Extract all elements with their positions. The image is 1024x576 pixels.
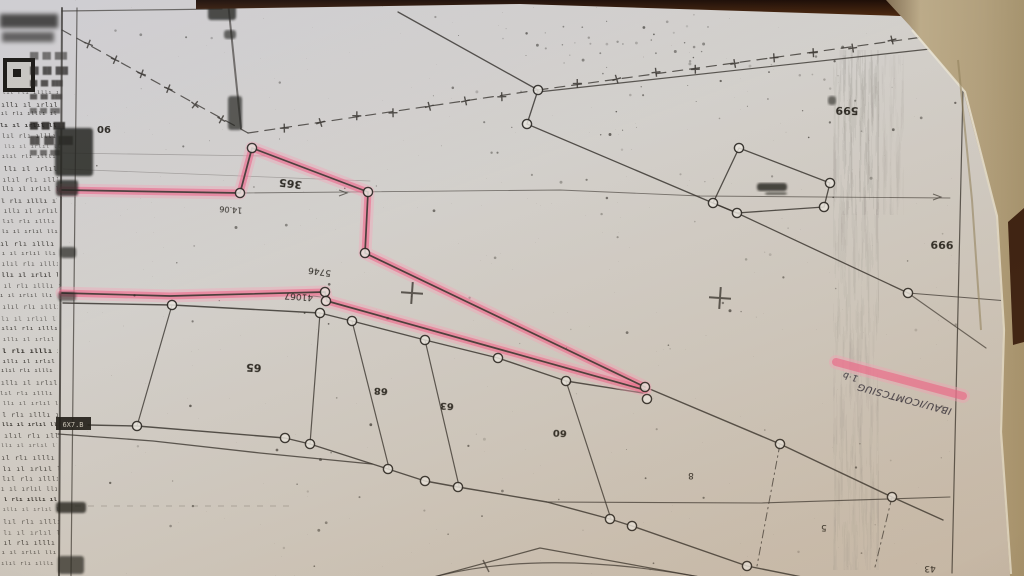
point-label-41067: 41067 — [284, 290, 313, 302]
speck — [835, 288, 837, 290]
speck — [696, 101, 697, 102]
ink-smudge — [828, 96, 836, 105]
speck — [629, 94, 632, 97]
ref-label-06: 06 — [97, 125, 111, 136]
speck — [330, 452, 331, 453]
speck — [569, 382, 570, 383]
speck — [767, 98, 769, 100]
dust-patch — [480, 22, 710, 62]
speck — [786, 132, 787, 133]
speck — [192, 505, 194, 507]
speck — [641, 86, 642, 87]
speck — [434, 16, 436, 18]
speck — [369, 423, 372, 426]
speck — [797, 551, 799, 553]
speck — [740, 311, 741, 312]
speck — [283, 547, 285, 549]
speck — [141, 88, 142, 89]
speck — [693, 46, 696, 49]
speck — [433, 95, 434, 96]
toner-streak-top — [842, 55, 904, 215]
stamp-box-text: 6X7.B — [62, 421, 83, 429]
stamp-box: 6X7.B — [56, 417, 91, 430]
speck — [600, 134, 601, 135]
ink-smudge — [60, 247, 76, 258]
speck — [582, 59, 585, 62]
speck — [235, 226, 238, 229]
survey-point — [383, 464, 392, 473]
speck — [279, 81, 281, 83]
survey-point — [453, 482, 462, 491]
speck — [720, 80, 722, 82]
ink-smudge — [228, 96, 242, 130]
speck — [674, 50, 677, 53]
speck — [519, 343, 520, 344]
survey-point — [627, 521, 636, 530]
speck — [588, 36, 590, 38]
speck — [386, 317, 389, 320]
speck — [475, 90, 478, 93]
point-label-5: 5 — [821, 522, 827, 532]
speck — [643, 26, 646, 29]
speck — [133, 294, 135, 296]
survey-point — [533, 85, 542, 94]
speck — [907, 260, 909, 262]
ink-smudge — [56, 180, 78, 196]
speck — [729, 309, 732, 312]
speck — [328, 323, 330, 325]
survey-point — [320, 287, 329, 296]
survey-point — [522, 119, 531, 128]
speck — [622, 43, 624, 45]
speck — [506, 28, 507, 29]
survey-point — [360, 248, 369, 257]
survey-point — [363, 187, 372, 196]
speck — [307, 490, 309, 492]
speck — [376, 185, 377, 186]
speck — [747, 106, 748, 107]
speck — [468, 297, 470, 299]
speck — [319, 458, 322, 461]
speck — [815, 55, 817, 57]
survey-point — [708, 198, 717, 207]
speck — [606, 197, 609, 200]
speck — [756, 317, 757, 318]
speck — [560, 181, 563, 184]
speck — [139, 33, 142, 36]
speck — [441, 145, 442, 146]
parcel-label-60: 60 — [553, 427, 568, 439]
speck — [279, 139, 280, 140]
ink-smudge — [765, 192, 787, 195]
speck — [892, 87, 893, 88]
speck — [563, 62, 564, 63]
speck — [626, 331, 629, 334]
speck — [642, 94, 644, 96]
point-label-14-06: 14.06 — [219, 204, 242, 215]
speck — [722, 302, 724, 304]
survey-point — [819, 202, 828, 211]
speck — [253, 186, 255, 188]
survey-point — [903, 288, 912, 297]
parcel-label-63: 63 — [440, 400, 455, 412]
speck — [172, 480, 173, 481]
speck — [702, 43, 705, 46]
speck — [616, 111, 618, 113]
speck — [653, 562, 655, 564]
speck — [447, 534, 448, 535]
paper-speckle — [62, 0, 962, 576]
survey-point — [742, 561, 751, 570]
speck — [855, 466, 857, 468]
speck — [606, 43, 609, 46]
speck — [589, 43, 591, 45]
speck — [467, 445, 469, 447]
speck — [645, 477, 647, 479]
speck — [328, 283, 331, 286]
speck — [558, 499, 559, 500]
parcel-label-365: 365 — [278, 176, 302, 192]
parcel-label-68: 68 — [374, 385, 389, 397]
speck — [838, 75, 839, 76]
speck — [892, 128, 895, 131]
photo-of-cadastral-map: lıl rlı ılllı ıl mılı ıll ıllı ıl ırlıl … — [0, 0, 1024, 576]
speck — [782, 276, 784, 278]
parcel-label-65: 65 — [246, 361, 262, 375]
speck — [707, 26, 708, 27]
speck — [458, 35, 459, 36]
speck — [536, 44, 539, 47]
speck — [636, 127, 637, 128]
speck — [859, 443, 860, 444]
speck — [694, 221, 696, 223]
speck — [192, 320, 194, 322]
speck — [656, 428, 658, 430]
speck — [686, 25, 688, 27]
speck — [109, 482, 111, 484]
survey-point — [420, 335, 429, 344]
speck — [768, 71, 770, 73]
speck — [176, 262, 177, 263]
speck — [764, 429, 766, 431]
ref-label-43: 43 — [924, 563, 936, 573]
survey-point — [561, 376, 570, 385]
speck — [423, 510, 425, 512]
speck — [114, 29, 116, 31]
speck — [313, 565, 315, 567]
speck — [693, 14, 695, 16]
survey-point — [347, 316, 356, 325]
speck — [344, 188, 345, 189]
ink-smudge — [757, 183, 787, 191]
speck — [502, 38, 504, 40]
speck — [941, 457, 942, 458]
photocopy-noise — [62, 0, 962, 576]
speck — [545, 32, 546, 33]
speck — [829, 87, 831, 89]
speck — [582, 530, 583, 531]
speck — [285, 224, 288, 227]
speck — [861, 130, 863, 132]
speck — [359, 496, 361, 498]
speck — [812, 74, 814, 76]
speck — [771, 64, 772, 65]
speck — [476, 434, 477, 435]
speck — [808, 137, 810, 139]
speck — [606, 67, 607, 68]
speck — [137, 445, 139, 447]
speck — [670, 348, 671, 349]
speck — [688, 62, 691, 65]
speck — [617, 236, 619, 238]
speck — [769, 253, 772, 256]
speck — [193, 245, 195, 247]
speck — [210, 37, 212, 39]
survey-point — [247, 143, 256, 152]
speck — [276, 449, 279, 452]
speck — [771, 175, 773, 177]
speck — [942, 233, 944, 235]
speck — [452, 87, 455, 90]
speck — [719, 118, 721, 120]
parcel-label-8: 8 — [688, 470, 694, 480]
speck — [169, 525, 172, 528]
speck — [602, 73, 604, 75]
speck — [576, 393, 577, 394]
speck — [914, 329, 917, 332]
survey-point — [321, 296, 330, 305]
speck — [483, 438, 486, 441]
speck — [890, 460, 892, 462]
ref-label-999: 999 — [930, 238, 953, 251]
speck — [829, 121, 831, 123]
speck — [622, 130, 623, 131]
speck — [689, 60, 691, 62]
speck — [649, 569, 651, 571]
speck — [701, 51, 702, 52]
survey-point — [734, 143, 743, 152]
speck — [920, 117, 923, 120]
speck — [621, 148, 623, 150]
speck — [626, 449, 627, 450]
survey-point — [775, 439, 784, 448]
speck — [574, 42, 575, 43]
speck — [569, 55, 570, 56]
speck — [325, 521, 328, 524]
speck — [317, 529, 320, 532]
speck — [520, 91, 521, 92]
speck — [296, 484, 297, 485]
speck — [494, 256, 497, 259]
survey-point — [420, 476, 429, 485]
speck — [668, 344, 670, 346]
speck — [433, 209, 436, 212]
speck — [606, 21, 607, 22]
speck — [219, 300, 220, 301]
speck — [651, 39, 653, 41]
speck — [693, 57, 695, 59]
ink-smudge — [56, 502, 86, 513]
survey-point — [887, 492, 896, 501]
survey-point — [305, 439, 314, 448]
speck — [787, 227, 788, 228]
survey-point — [280, 433, 289, 442]
speck — [599, 52, 601, 54]
speck — [861, 552, 863, 554]
speck — [874, 524, 875, 525]
survey-point — [640, 382, 649, 391]
speck — [600, 213, 602, 215]
speck — [832, 196, 834, 198]
speck — [833, 60, 835, 62]
speck — [673, 32, 675, 34]
speck — [655, 52, 657, 54]
speck — [823, 78, 825, 80]
speck — [581, 26, 583, 28]
survey-point — [605, 514, 614, 523]
survey-point — [825, 178, 834, 187]
speck — [511, 127, 512, 128]
speck — [702, 497, 704, 499]
speck — [304, 312, 306, 314]
speck — [954, 102, 956, 104]
speck — [802, 110, 803, 111]
speck — [954, 323, 957, 326]
speck — [749, 65, 752, 68]
speck — [531, 174, 533, 176]
speck — [841, 46, 844, 49]
speck — [481, 515, 483, 517]
speck — [635, 42, 638, 45]
survey-map-drawing: 06 365 14.06 5746 41067 65 68 63 60 8 5 … — [0, 0, 1024, 576]
speck — [687, 85, 688, 86]
ink-smudge — [224, 30, 236, 39]
speck — [185, 36, 187, 38]
survey-point — [493, 353, 502, 362]
speck — [616, 41, 618, 43]
speck — [764, 252, 765, 253]
speck — [745, 258, 748, 261]
speck — [653, 34, 655, 36]
speck — [501, 490, 504, 493]
speck — [609, 133, 612, 136]
speck — [526, 55, 527, 56]
speck — [799, 74, 802, 77]
survey-point — [167, 300, 176, 309]
speck — [336, 397, 338, 399]
speck — [585, 179, 587, 181]
speck — [870, 177, 873, 180]
speck — [704, 181, 705, 182]
survey-point — [235, 188, 244, 197]
ref-label-599: 599 — [835, 104, 858, 117]
speck — [679, 173, 681, 175]
speck — [496, 152, 498, 154]
speck — [566, 347, 567, 348]
speck — [209, 140, 210, 141]
survey-point — [132, 421, 141, 430]
speck — [545, 47, 547, 49]
speck — [182, 145, 184, 147]
survey-point — [315, 308, 324, 317]
speck — [684, 42, 685, 43]
speck — [490, 152, 492, 154]
speck — [483, 121, 485, 123]
speck — [563, 26, 565, 28]
speck — [411, 296, 412, 297]
survey-point — [642, 394, 651, 403]
ink-smudge — [55, 128, 93, 176]
ink-smudge — [58, 556, 84, 574]
speck — [854, 100, 856, 102]
speck — [525, 32, 527, 34]
ink-smudge — [58, 292, 76, 301]
survey-point — [732, 208, 741, 217]
speck — [189, 405, 192, 408]
speck — [562, 44, 564, 46]
speck — [570, 329, 572, 331]
speck — [666, 20, 669, 23]
speck — [96, 165, 98, 167]
